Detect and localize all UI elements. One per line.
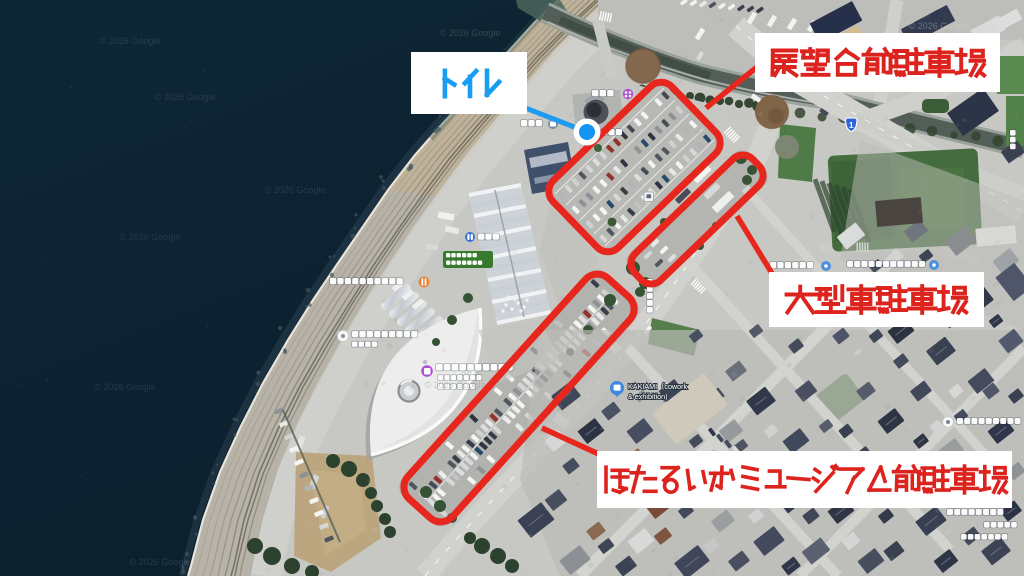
svg-text:© 2026 Google: © 2026 Google bbox=[120, 232, 181, 242]
svg-text:© 2026 Google: © 2026 Google bbox=[440, 28, 501, 38]
svg-text:KAKIAMI（cowork: KAKIAMI（cowork bbox=[628, 382, 688, 391]
svg-text:1: 1 bbox=[849, 120, 854, 130]
svg-text:© 2026 Google: © 2026 Google bbox=[100, 36, 161, 46]
svg-text:& exhibition): & exhibition) bbox=[628, 392, 668, 401]
svg-text:© 2026 Google: © 2026 Google bbox=[95, 382, 156, 392]
svg-text:© 2026 Google: © 2026 Google bbox=[130, 557, 191, 567]
svg-text:© 2026 Google: © 2026 Google bbox=[265, 185, 326, 195]
svg-text:© 2026 Google: © 2026 Google bbox=[155, 92, 216, 102]
svg-text:© 2026 Google: © 2026 Google bbox=[425, 380, 486, 390]
svg-text:© 2026 Google: © 2026 Google bbox=[909, 21, 970, 31]
